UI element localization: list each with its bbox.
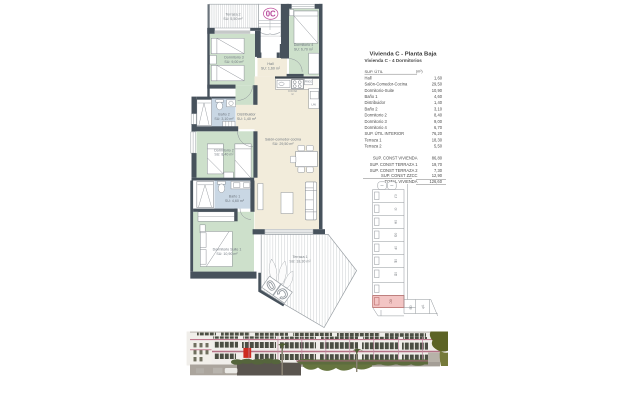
svg-text:m²: m² — [291, 93, 294, 96]
svg-text:8,40: 8,40 — [434, 113, 443, 118]
svg-text:SU: 6,70 m²: SU: 6,70 m² — [294, 48, 314, 52]
svg-text:SU: 18,30 m²: SU: 18,30 m² — [289, 260, 311, 264]
svg-text:SU: 3,10 m²: SU: 3,10 m² — [214, 117, 234, 121]
svg-text:SUP. ÚTIL INTERIOR: SUP. ÚTIL INTERIOR — [365, 131, 405, 136]
svg-text:0I: 0I — [394, 208, 398, 211]
svg-text:0G: 0G — [394, 233, 398, 238]
svg-text:76,20: 76,20 — [432, 131, 443, 136]
svg-text:SU: 8,40 m²: SU: 8,40 m² — [214, 153, 234, 157]
svg-text:6,70: 6,70 — [434, 125, 443, 130]
svg-text:0C: 0C — [266, 9, 276, 18]
svg-text:0D: 0D — [394, 272, 398, 277]
svg-text:Hall: Hall — [365, 75, 372, 80]
svg-text:SU: 1,60 m²: SU: 1,60 m² — [261, 66, 281, 70]
svg-text:0F: 0F — [394, 246, 398, 250]
svg-text:29,50: 29,50 — [432, 82, 443, 87]
svg-text:0E: 0E — [394, 259, 398, 264]
svg-text:SU: 29,50 m²: SU: 29,50 m² — [272, 142, 294, 146]
svg-text:19,70: 19,70 — [432, 162, 443, 167]
svg-text:SUP. ÚTIL: SUP. ÚTIL — [365, 69, 384, 74]
svg-text:0C: 0C — [389, 299, 393, 304]
svg-text:Distribuidor: Distribuidor — [365, 100, 386, 105]
svg-text:SU: 9,00 m²: SU: 9,00 m² — [224, 60, 244, 64]
svg-text:12,90: 12,90 — [432, 173, 443, 178]
svg-text:10,90: 10,90 — [432, 88, 443, 93]
svg-text:SUP. CONST ZZCC: SUP. CONST ZZCC — [381, 173, 418, 178]
svg-text:4,60: 4,60 — [434, 94, 443, 99]
svg-text:Terraza 1: Terraza 1 — [365, 137, 383, 142]
svg-text:Dormitorio 4: Dormitorio 4 — [365, 125, 388, 130]
svg-text:9,00: 9,00 — [434, 119, 443, 124]
svg-text:Vivienda C - 4 Dormitorios: Vivienda C - 4 Dormitorios — [365, 58, 423, 63]
svg-text:Salón-Comedor-Cocina: Salón-Comedor-Cocina — [365, 82, 408, 87]
svg-text:(m²): (m²) — [416, 70, 423, 74]
svg-text:Baño 1: Baño 1 — [365, 94, 379, 99]
svg-text:FRIGO: FRIGO — [305, 80, 313, 83]
svg-text:SUP. CONST VIVIENDA: SUP. CONST VIVIENDA — [373, 156, 418, 161]
svg-text:Dormitorio 3: Dormitorio 3 — [365, 119, 388, 124]
svg-text:1,60: 1,60 — [434, 75, 443, 80]
svg-text:Dormitorio 2: Dormitorio 2 — [365, 113, 388, 118]
svg-text:Dormitorio-Suite: Dormitorio-Suite — [365, 88, 395, 93]
svg-text:86,80: 86,80 — [432, 156, 443, 161]
svg-text:SU: 4,60 m²: SU: 4,60 m² — [225, 199, 245, 203]
svg-text:SU: 5,50 m²: SU: 5,50 m² — [223, 17, 243, 21]
svg-text:SU: 1,40 m²: SU: 1,40 m² — [237, 117, 257, 121]
svg-text:Terraza 2: Terraza 2 — [365, 144, 383, 149]
svg-text:Vivienda C - Planta Baja: Vivienda C - Planta Baja — [370, 51, 438, 57]
svg-text:1,40: 1,40 — [434, 100, 443, 105]
svg-text:LAV: LAV — [311, 102, 316, 106]
svg-text:18,30: 18,30 — [432, 137, 443, 142]
svg-text:5,50: 5,50 — [434, 144, 443, 149]
svg-text:3,10: 3,10 — [434, 106, 443, 111]
svg-text:SU: 10,90 m²: SU: 10,90 m² — [216, 252, 238, 256]
svg-text:SUP. CONST TERRAZA 1: SUP. CONST TERRAZA 1 — [370, 162, 418, 167]
svg-text:0B: 0B — [409, 305, 413, 310]
svg-text:0H: 0H — [394, 220, 398, 225]
svg-text:0J: 0J — [394, 194, 398, 198]
svg-text:Baño 2: Baño 2 — [365, 106, 379, 111]
